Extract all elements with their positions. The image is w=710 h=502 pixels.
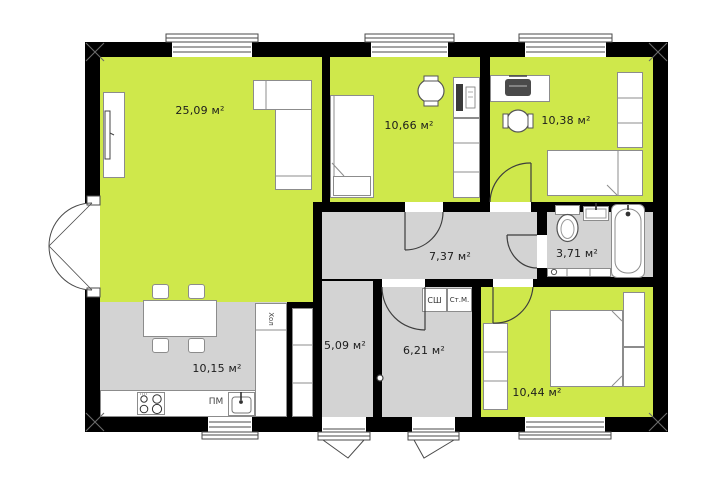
- area-label-living: 25,09 м²: [155, 104, 245, 117]
- area-label-bedroom-top-2: 10,38 м²: [521, 114, 611, 127]
- area-label-bathroom: 3,71 м²: [532, 247, 622, 260]
- area-label-storage: 5,09 м²: [300, 339, 390, 352]
- bedroom-2-details: [503, 76, 643, 195]
- interior-doors-linework: [382, 163, 537, 330]
- fridge-label: Хол: [260, 306, 282, 332]
- living-room-details: [105, 81, 311, 176]
- area-label-kitchen: 10,15 м²: [172, 362, 262, 375]
- exterior-doors-linework: [318, 429, 459, 458]
- area-label-hallway: 7,37 м²: [405, 250, 495, 263]
- area-label-utility: 6,21 м²: [379, 344, 469, 357]
- floor-plan: СШ Ст.М.: [0, 0, 710, 502]
- entrance-door-linework: [49, 196, 100, 297]
- area-label-bedroom-bottom: 10,44 м²: [492, 386, 582, 399]
- dishwasher-label: ПМ: [196, 397, 236, 407]
- bathroom-details: [551, 203, 641, 277]
- area-label-bedroom-top-1: 10,66 м²: [364, 119, 454, 132]
- windows-linework: [166, 34, 612, 439]
